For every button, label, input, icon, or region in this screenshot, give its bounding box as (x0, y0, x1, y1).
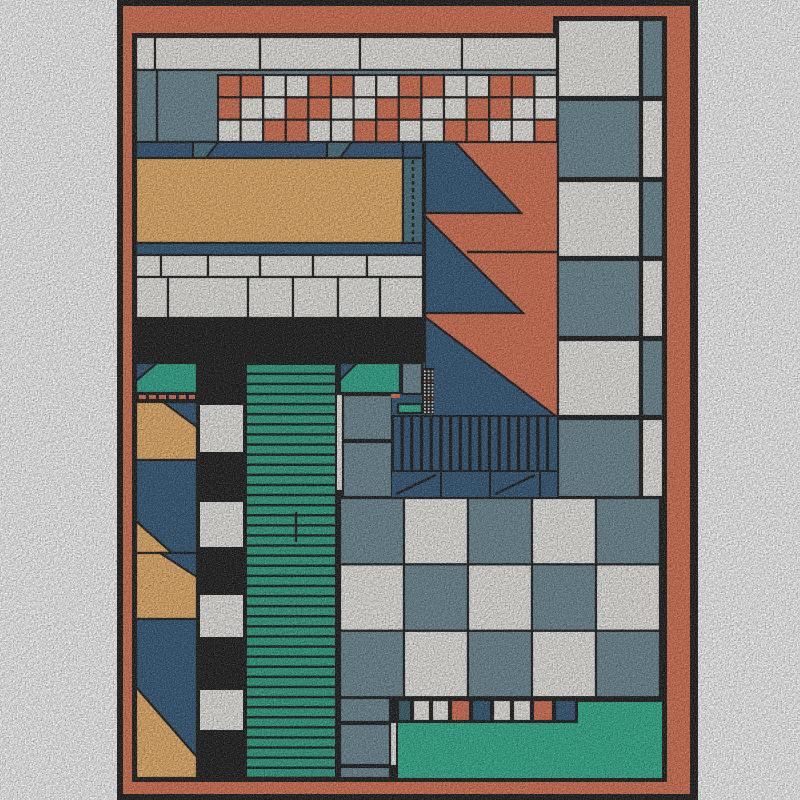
rug-artwork (0, 0, 800, 800)
grain-overlay-light (0, 0, 800, 800)
rug-photo-canvas (0, 0, 800, 800)
